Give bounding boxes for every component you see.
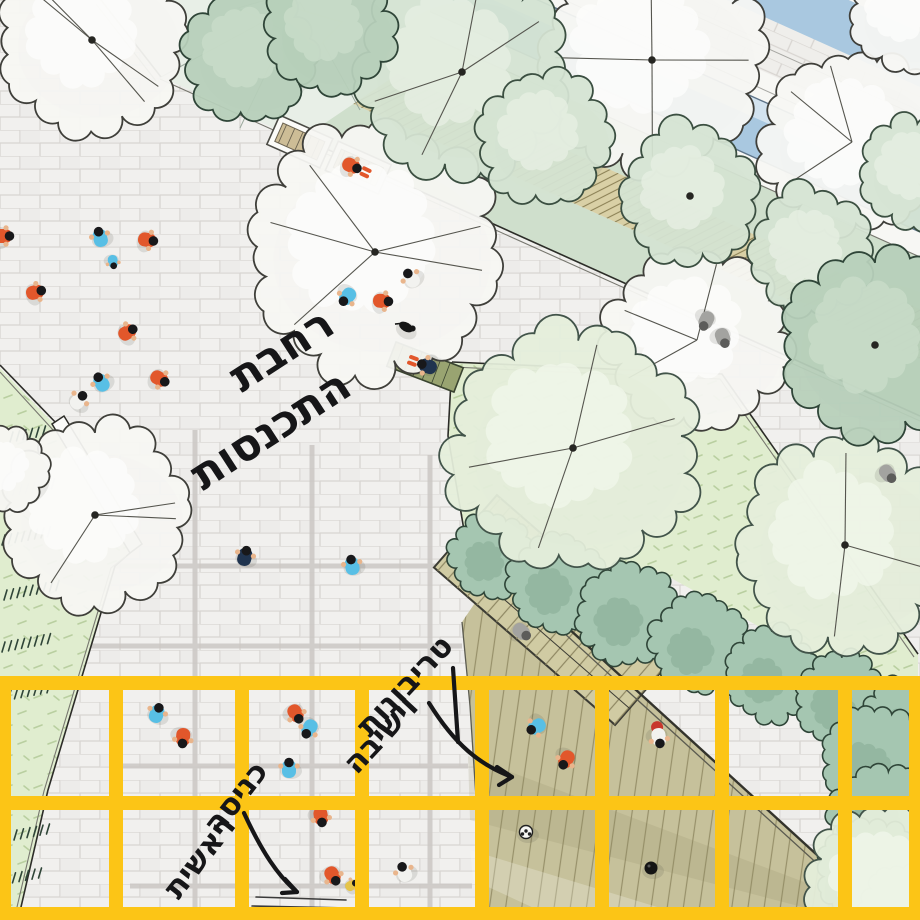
grid-line-horizontal	[0, 907, 920, 920]
grid-line-vertical	[475, 676, 489, 920]
grid-line-horizontal	[0, 676, 920, 690]
grid-line-vertical	[0, 676, 11, 920]
grid-line-vertical	[838, 676, 852, 920]
grid-line-vertical	[595, 676, 609, 920]
grid-line-vertical	[109, 676, 123, 920]
grid-line-horizontal	[0, 796, 920, 810]
grid-line-vertical	[909, 676, 920, 920]
grid-line-vertical	[715, 676, 729, 920]
site-plan-canvas: רחבתהתכנסותטריבונותוישיבהכניסהראשית	[0, 0, 920, 920]
site-plan-stage: רחבתהתכנסותטריבונותוישיבהכניסהראשית	[0, 0, 920, 920]
